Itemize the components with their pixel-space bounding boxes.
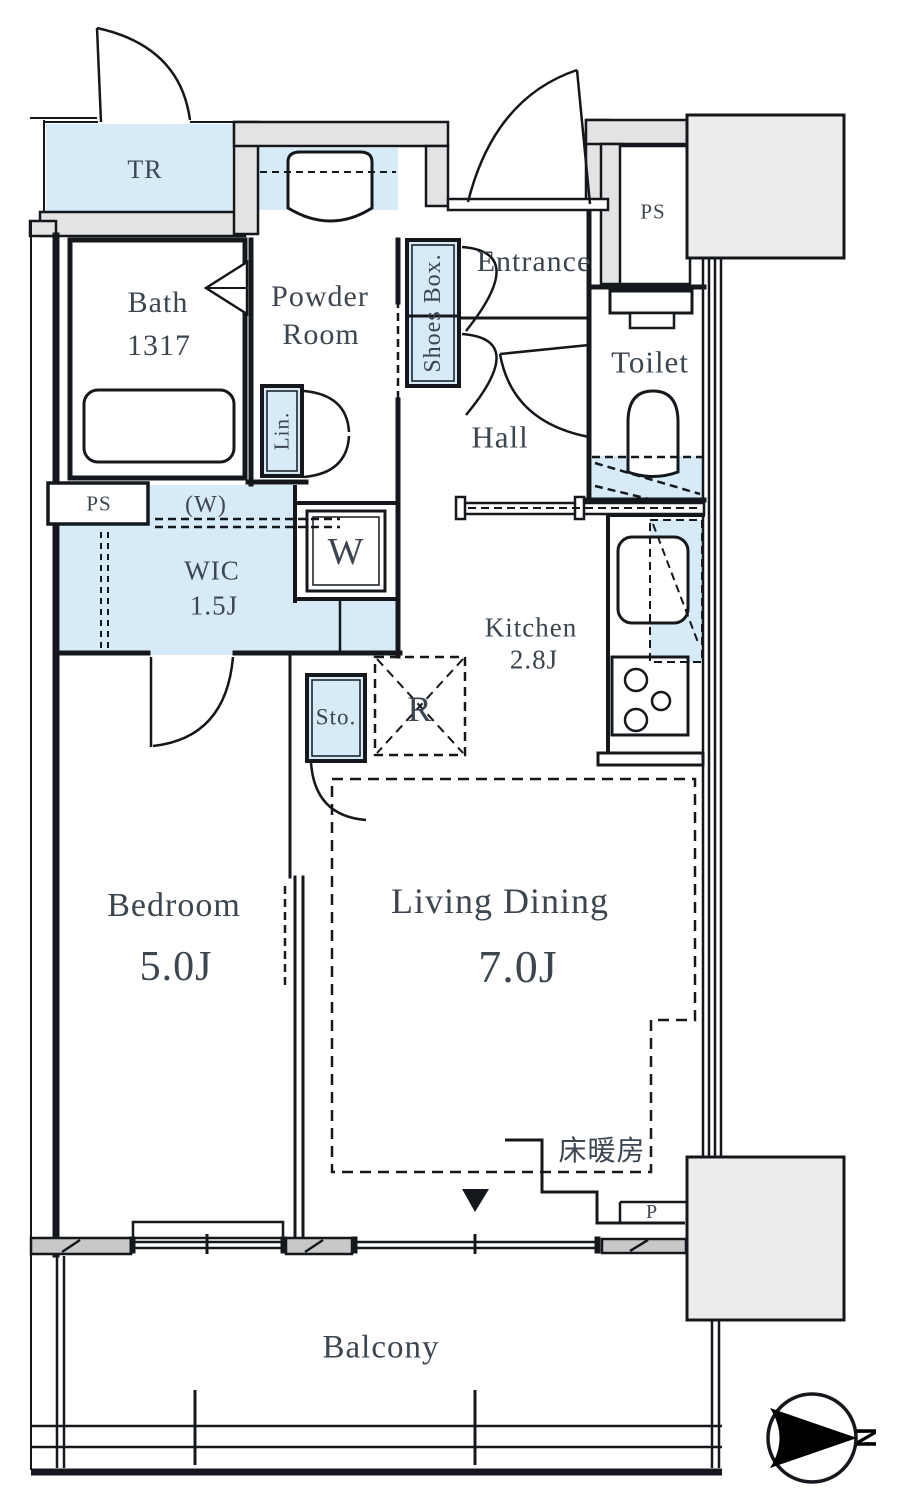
entrance-door-arc — [468, 70, 577, 202]
label-shoes-box: Shoes Box. — [421, 253, 445, 372]
trunk-room-door-arc — [97, 28, 190, 120]
room-label-hall: Hall — [471, 422, 528, 453]
room-label-kitchen-size: 2.8J — [510, 647, 558, 674]
room-label-bath-size: 1317 — [127, 331, 191, 361]
room-label-wic-size: 1.5J — [190, 593, 238, 620]
room-label-bedroom: Bedroom — [107, 889, 241, 923]
bathtub-icon — [84, 390, 234, 462]
room-label-bath: Bath — [128, 288, 189, 318]
washbasin-icon — [288, 152, 372, 221]
room-label-living: Living Dining — [391, 883, 609, 919]
label-floor-heating: 床暖房 — [558, 1138, 645, 1166]
linen-door-arc-2 — [304, 436, 349, 477]
label-ps-top: PS — [640, 202, 665, 223]
wic-left-strip-fill — [60, 523, 150, 655]
room-label-toilet: Toilet — [611, 347, 689, 378]
entrance-sill — [448, 199, 608, 210]
stove-icon — [612, 657, 688, 735]
label-pipe-space: P — [646, 1202, 658, 1222]
label-washer-hookup: (W) — [185, 493, 227, 517]
room-label-balcony: Balcony — [323, 1332, 440, 1365]
toilet-bowl-icon — [628, 391, 678, 477]
bedroom-door-arc — [153, 657, 233, 746]
pillar-block-top — [687, 115, 844, 258]
room-label-entrance: Entrance — [477, 247, 592, 277]
outer-thin-walls — [30, 118, 234, 1470]
room-label-living-size: 7.0J — [478, 944, 557, 990]
compass-icon — [768, 1394, 857, 1482]
label-compass-north: N — [852, 1427, 880, 1448]
label-linen: Lin. — [272, 412, 293, 450]
pillar-blocks — [687, 115, 844, 1320]
room-label-wic: WIC — [184, 558, 239, 585]
room-label-bedroom-size: 5.0J — [140, 946, 213, 988]
storage-door-arc — [311, 763, 366, 820]
shoes-box-door-arc-2 — [462, 334, 497, 415]
kitchen-sink-icon — [618, 537, 688, 623]
kitchen-counter-end — [598, 753, 703, 765]
toilet-tank-icon — [610, 291, 692, 313]
label-washer: W — [328, 533, 365, 571]
floor-plan: TR Bath 1317 Powder Room Shoes Box. Entr… — [0, 0, 898, 1500]
label-storage: Sto. — [316, 706, 356, 729]
window-band — [31, 1222, 686, 1254]
room-label-tr: TR — [127, 157, 162, 183]
floor-plan-drawing — [0, 0, 898, 1500]
linen-door-arc — [304, 391, 349, 432]
room-label-powder-2: Room — [282, 320, 359, 350]
room-label-kitchen: Kitchen — [485, 615, 577, 642]
room-label-powder: Powder — [271, 282, 369, 312]
pillar-block-bottom — [687, 1157, 844, 1320]
direction-triangle-icon — [462, 1189, 489, 1212]
label-ps-left: PS — [86, 494, 111, 515]
label-refrigerator: R — [407, 691, 432, 727]
